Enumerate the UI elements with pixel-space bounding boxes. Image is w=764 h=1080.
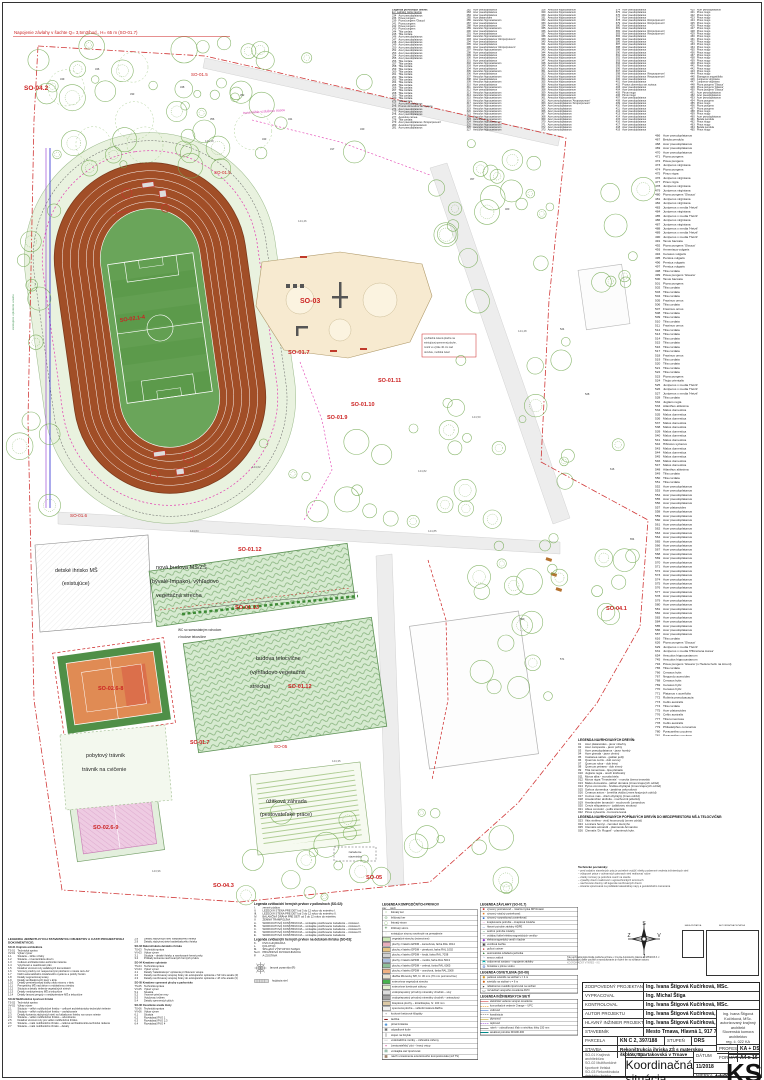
plan-label-t3: strecha) [250, 684, 270, 690]
plan-label-u1: úžitková záhrada [266, 799, 307, 805]
composition-label: plochy z liateho EPDM – oranžová, farba … [392, 970, 453, 973]
tree-symbol [548, 564, 558, 574]
object-item: 3.2Príklady kotvenia navrhovaných hernýc… [135, 958, 253, 961]
symbol-glyph: ○ [383, 911, 390, 915]
color-swatch [383, 969, 391, 974]
legend-objects: LEGENDA JEDNOTLIVÝCH STAVEBNÝCH OBJEKTOV… [8, 938, 252, 1074]
line-swatch [481, 1010, 489, 1011]
field-label: VYPRACOVAL [583, 992, 644, 1000]
note-box-line: existujúcej spevnenej ploche, [424, 342, 457, 345]
tree-symbol [475, 199, 500, 224]
drawing-title: Koordinačná situácia stavby [626, 1058, 693, 1080]
plan-label-leftgreen: existujúce oplotenie areálu [11, 294, 15, 330]
garden-area [250, 762, 370, 855]
tree-symbol [217, 36, 230, 49]
field-value: DRS [692, 1037, 716, 1045]
tree-symbol [468, 565, 491, 588]
building-ms-zs [149, 543, 355, 626]
tree-id-number: 654 [630, 537, 635, 541]
tree-symbol [544, 692, 553, 701]
object-item: 6.4Rozvádzač RVO 4 [135, 1023, 253, 1026]
tree-symbol [527, 358, 544, 375]
tree-symbol [489, 826, 514, 851]
note-box-line: úrovňou, mobilná zeleň [424, 351, 450, 354]
tree-symbol [551, 350, 572, 371]
tree-symbol [304, 887, 316, 899]
tree-symbol [527, 156, 541, 170]
tree-symbol [504, 576, 523, 595]
legend-label: rozvádzač verejného osvetlenia RVO [487, 989, 530, 992]
plan-label-detske1: detské ihrisko MŠ [55, 567, 98, 574]
tree-symbol [492, 441, 505, 454]
field-value: 11/2018 [694, 1063, 728, 1074]
tree-symbol [526, 189, 535, 198]
technical-notes: Technické poznámky:– pred začatím staveb… [578, 866, 760, 918]
tree-symbol [334, 487, 359, 512]
tree-symbol [561, 337, 570, 346]
tree-symbol [418, 809, 425, 816]
composition-label: extenzívna vegetačná strecha [392, 980, 428, 983]
tree-id-number: 349 [60, 77, 65, 81]
tree-id-number: 317 [330, 147, 335, 151]
line-swatch [481, 1028, 489, 1029]
plan-label-so_05a: SO-05 [274, 744, 288, 749]
plan-label-so_01_5b: SO-01.5 [214, 170, 231, 175]
field-label: AUTOR PROJEKTU [583, 1010, 644, 1018]
building-annex [578, 264, 630, 330]
legend-label: návrh – odvodňovací žľab s mriežkou šírk… [490, 1027, 549, 1030]
drawing-code: KS [729, 1058, 759, 1080]
play-item: P.A-ZOSTAVA [254, 954, 380, 957]
legend-label: výsuvný postrekovač – rotačná tryska MP … [487, 908, 544, 911]
legend-label: senzor zrážok [487, 956, 503, 959]
legend-label: kvapkovacie potrubie – kvapková závlaha [487, 921, 535, 924]
field-value: Mesto Trnava, Hlavná 1, 917 71 Trnava [644, 1028, 716, 1036]
object-item: 1.14Detaily lanovej pergoly v medzipries… [8, 994, 126, 997]
tree-symbol [217, 78, 227, 88]
symbol-glyph: ▤ [383, 1050, 390, 1054]
tree-symbol [334, 861, 343, 870]
rope-pyramid-icon [254, 961, 267, 974]
plan-label-p2: trávnik na cvičenie [82, 767, 126, 773]
plan-label-so_01_13: SO-01.13 [235, 605, 259, 611]
tree-symbol [70, 61, 86, 77]
legend-header: LEGENDA JEDNOTLIVÝCH STAVEBNÝCH OBJEKTOV… [8, 938, 126, 945]
legend-label: automatická ovládacia jednotka [487, 952, 523, 955]
symbol-glyph: 〰 [383, 1039, 390, 1043]
composition-label: stojan na bicykle [391, 1034, 411, 1037]
tree-symbol [612, 575, 626, 589]
note-line: – situácia spracovaná na podklade katast… [578, 885, 760, 888]
plan-label-wc1: WC so samostatným vchodom [178, 628, 222, 632]
note-box-line: múrik vo výške 40 cm nad [424, 346, 454, 349]
tree-symbol [473, 162, 488, 177]
field-label: STAVEBNÍK [583, 1028, 644, 1036]
composition-label: vonkajšia sieť športovísk [391, 1050, 420, 1053]
composition-label: listnatý strom [391, 922, 407, 925]
legend-header: LEGENDA ZÁVLAHY (SO-01.7) [480, 903, 578, 907]
tree-symbol [525, 655, 541, 671]
plan-label-so_01_5a: SO-01.5 [191, 72, 208, 77]
tree-symbol [175, 80, 193, 98]
legend-label: komunikačné vedenie Orange – UPC [490, 1005, 533, 1008]
composition-label: spevnená plocha – veľkoformátová dlažba [392, 1007, 443, 1010]
proposed-tree-entry: 022Pinus sylvestris - borovica lesná [578, 811, 760, 814]
composition-label: lavička [391, 1018, 399, 1021]
color-swatch [383, 980, 391, 985]
legend-header: LEGENDA KOMPOZIČNÝCH PRVKOV [382, 903, 478, 907]
tree-symbol [59, 85, 85, 111]
elevation-label: 144,35 [332, 759, 341, 763]
tree-symbol [448, 399, 465, 416]
tree-symbol [502, 150, 523, 171]
tree-symbol [612, 439, 624, 451]
line-swatch [481, 1006, 489, 1007]
tree-symbol [604, 214, 627, 237]
irrigation-table: ■výsuvný postrekovač – rotačná tryska MP… [480, 907, 578, 970]
north-compass: S J V Z [626, 920, 662, 958]
plan-label-so_02_68: SO-02.6-8 [98, 686, 123, 692]
tree-symbol [79, 34, 105, 60]
symbol-glyph: ▣ [383, 1028, 390, 1032]
drawing-sheet: Napojenie závlahy v šachte Q= 3,5m3/hod.… [0, 0, 764, 1080]
tree-symbol [352, 485, 363, 496]
rope-pyramid-row: lanová pyramída (R) [254, 961, 380, 974]
elevation-label: 144,18 [205, 139, 214, 143]
composition-label: plochy z liateho EPDM – šedá, farba RAL … [392, 954, 448, 957]
authorization-stamp-box [706, 930, 759, 976]
tree-symbol [601, 183, 620, 202]
color-swatch [383, 974, 391, 979]
swing-net-icon [254, 978, 269, 983]
object-item: 4.3Detaily navrhovanej vstupnej brány do… [135, 977, 253, 980]
authorization-stamp-caption: AUTORIZAČNÁ PEČIATKA [706, 924, 758, 928]
tree-id-number: 343 [262, 137, 267, 141]
tree-symbol [197, 41, 210, 54]
athletics-track [8, 116, 312, 539]
legend-label: ovládací kábel elektromagnetických venti… [487, 934, 537, 937]
utilities-table: elektrické vedenie verejné osvetleniekom… [480, 999, 578, 1035]
tree-symbol [497, 559, 506, 568]
tree-symbol [439, 420, 458, 439]
tree-symbol [28, 50, 49, 71]
tree-symbol [53, 150, 62, 159]
composition-label: vodozádržné múriky – záhradné záhony [391, 1039, 439, 1042]
plan-label-trasa: trasa kábla vzdušnou trasou [243, 108, 286, 115]
plan-label-so_01_7b: SO-01.7 [190, 740, 209, 746]
elevation-label: 144,62 [252, 465, 261, 469]
legend-label: svietidlo na stožiari v = 6 m [487, 980, 518, 983]
tree-symbol [85, 41, 94, 50]
tree-symbol [407, 515, 419, 527]
building-school-existing [410, 611, 539, 769]
elevation-label: 143,96 [152, 869, 161, 873]
legend-label: fontánka s pitnou vodou [487, 965, 515, 968]
plan-label-wc2: v budove telocvične [178, 635, 206, 639]
composition-label: 'pestovateľský' plot – hravý vstup [391, 1045, 430, 1048]
tree-symbol [112, 60, 134, 82]
composition-label: listnatý ker [391, 911, 404, 914]
tree-symbol [356, 74, 372, 90]
plan-label-u2: (pestovateľské práce) [260, 812, 312, 818]
color-swatch [383, 996, 391, 1001]
composition-label: vegetačné strechy (extenzívne) [392, 938, 429, 941]
composition-label: existujúce stromy navrhnuté na presadeni… [391, 932, 442, 935]
lighting-table: ✺parkové svietidlo na stožiari v = 4 m✹s… [480, 975, 578, 994]
tree-symbol [467, 140, 475, 148]
kindergarten-playground [35, 535, 152, 632]
plan-label-so_01_6: SO-01.6 [70, 513, 88, 518]
composition-label: návrh umiestnenia exteriérového komposto… [391, 1055, 459, 1058]
symbol-glyph: ◯ [383, 921, 390, 925]
tree-symbol [626, 549, 640, 563]
field-value: KN C 2, 397/188 [618, 1037, 665, 1045]
tree-id-number: 560 [520, 617, 525, 621]
plan-label-p1: pobytový trávnik [86, 753, 125, 759]
plan-label-b1l2: (bývalé-Impako), výhľadovo [150, 579, 219, 585]
composition-row: ▦návrh umiestnenia exteriérového kompost… [383, 1054, 478, 1059]
tree-id-number: 460 [505, 207, 510, 211]
legend-label: ventilová šachta [487, 943, 506, 946]
field-value: Ing. Ivana Štigová Kučírková, MSc. [644, 1010, 716, 1018]
tree-id-number: 524 [560, 327, 565, 331]
tree-symbol [289, 470, 297, 478]
tree-entry: 465Pinus mugo [690, 129, 758, 132]
plan-label-so_01_7: SO-01.7 [288, 350, 310, 356]
composition-label: extenzívne kvetinové záhony [392, 986, 427, 989]
tree-symbol [38, 494, 60, 516]
tree-symbol [516, 198, 528, 210]
composition-label: plochy z liateho EPDM – modrá, farba RAL… [392, 959, 450, 962]
tree-entry: 373Acer pseudoplatanus [541, 129, 609, 132]
legend-header: LEGENDA OSVETLENIA (SO-06) [480, 971, 578, 975]
field-label: MIERKA [696, 1074, 713, 1076]
tree-symbol [167, 101, 187, 121]
composition-label: plochy z liateho EPDM – zelená, farba RA… [392, 964, 450, 967]
legend-original-trees-band: Legenda pôvodných drevín:E.č. Latinský n… [392, 9, 758, 133]
field-value: Ing. Ivana Štigová Kučírková, MSc. [644, 1001, 759, 1009]
legend-composition: LEGENDA KOMPOZIČNÝCH PRVKOVstavnávrh○lis… [382, 900, 478, 1074]
elevation-label: 144,50 [472, 415, 481, 419]
tree-symbol [458, 501, 473, 516]
plan-label-so_03: SO-03 [300, 298, 320, 305]
architect-stamp-text: Ing. Ivana Štigová Kučírková, MSc.autori… [717, 1010, 759, 1045]
symbol-glyph: ┅ [383, 1044, 390, 1048]
symbol-glyph: ∥ [383, 1034, 390, 1038]
tree-id-number: 340 [360, 127, 365, 131]
color-swatch [383, 937, 391, 942]
small-stamp-caption: MALÁ PEČIATKA [682, 924, 704, 928]
tree-symbol [472, 840, 487, 855]
tree-id-number: 571 [560, 657, 565, 661]
tree-symbol [628, 252, 637, 261]
plan-label-detske2: (existujúce) [62, 581, 90, 587]
tree-symbol [534, 256, 549, 271]
legend-irrigation-lighting-utilities: LEGENDA ZÁVLAHY (SO-01.7)■výsuvný postre… [480, 900, 578, 1074]
tree-symbol [592, 586, 603, 597]
playground-so03 [256, 252, 432, 358]
plan-label-so_01_9: SO-01.9 [327, 415, 347, 421]
color-swatch [383, 964, 391, 969]
symbol-glyph: ◌ [383, 932, 390, 936]
symbol-glyph: ● [383, 1012, 390, 1016]
site-facility-label: staveniska [348, 855, 362, 859]
plan-label-so_01_12b: SO-01.12 [288, 684, 312, 690]
tree-id-number: 616 [610, 467, 615, 471]
composition-table: ○listnatý ker◎ihličnatý ker◯listnatý str… [382, 910, 478, 1061]
tree-id-number: 346 [95, 67, 100, 71]
legend-label: reflektorové svietidlo športovísk na sto… [487, 985, 536, 988]
elevation-label: 144,82 [418, 469, 427, 473]
tree-symbol [474, 584, 490, 600]
plan-label-so_01_11: SO-01.11 [378, 378, 401, 384]
line-swatch [481, 1019, 489, 1020]
tree-symbol [481, 185, 506, 210]
tree-symbol [437, 497, 453, 513]
symbol-glyph: ▬ [383, 1018, 390, 1022]
tree-symbol [595, 549, 613, 567]
legend-label: výsuvný rozprašovací postrekovač [487, 917, 527, 920]
composition-label: štiepkové plochy – kôra/štiepka, hr. 100… [392, 1002, 444, 1005]
legend-label: areálové potrubie DN100-300 [490, 1031, 524, 1034]
tree-symbol [383, 511, 398, 526]
plan-label-so_01_10: SO-01.10 [351, 402, 375, 408]
composition-label: ihličnatý ker [391, 916, 405, 919]
legend-header: LEGENDA NAVRHOVANÝCH POPÍNAVÝCH DREVÍN D… [578, 816, 760, 819]
legend-row: areálové potrubie DN100-300 [481, 1030, 578, 1034]
tree-symbol [343, 141, 365, 163]
legend-row: ▭rozvádzač verejného osvetlenia RVO [481, 989, 578, 993]
legend-play-elements: Legenda cvičiacich/ herných prvkov v pol… [254, 900, 380, 1074]
tree-symbol [282, 871, 300, 889]
plan-label-b1l1: nová budova MŠ/ZŠ [156, 564, 207, 571]
tree-symbol [372, 444, 392, 464]
plan-label-so_01_12a: SO-01.12 [238, 547, 262, 553]
tree-symbol [463, 433, 472, 442]
tree-symbol [344, 429, 369, 454]
line-swatch [481, 1023, 489, 1024]
tree-symbol [307, 500, 329, 522]
legend-label: hlavné potrubie závlahy HDPE [487, 926, 522, 929]
field-value: Ing. Ivana Štigová Kučírková, MSc. [644, 983, 759, 991]
legend-original-trees-column: 466Acer pseudoplatanus467Betula pendula4… [655, 134, 761, 736]
field-value: Ing. Ivana Štigová Kučírková, MSc. [644, 1019, 716, 1027]
tree-symbol [297, 851, 316, 870]
color-swatch [383, 1006, 391, 1011]
legend-label: elektromagnetický ventil v šachte [487, 939, 525, 942]
field-label: VÝKRES [628, 1052, 645, 1057]
tree-symbol [448, 441, 462, 455]
line-swatch [481, 1001, 489, 1002]
tree-symbol [230, 81, 252, 103]
proposed-tree-entry: 026Clematis 'Dr. Ruppel' - plamienok hyb… [578, 829, 760, 832]
legend-label: sekčné potrubie závlahy [487, 930, 515, 933]
tree-id-number: 457 [470, 177, 475, 181]
compass-north: S [642, 921, 646, 927]
color-swatch [383, 953, 391, 958]
plan-label-so_04_2: SO-04.2 [24, 85, 49, 92]
composition-label: plochy z liateho EPDM – piesková, farba … [392, 948, 453, 951]
symbol-glyph: ◎ [383, 916, 390, 920]
tree-symbol [561, 449, 574, 462]
field-label: STUPEŇ [665, 1037, 692, 1045]
symbol-glyph: ✳ [383, 927, 390, 931]
tree-symbol [632, 177, 656, 201]
tree-symbol [95, 81, 116, 102]
site-facility-label: zariadenie [349, 850, 362, 854]
title-block: ZODPOVEDNÝ PROJEKTANT Ing. Ivana Štigová… [582, 982, 758, 1075]
building-telocvicna [183, 617, 386, 752]
symbol-glyph: ▦ [383, 1055, 390, 1059]
tree-id-number: 333 [130, 92, 135, 96]
color-swatch [383, 942, 391, 947]
tree-symbol [493, 867, 519, 893]
tree-symbol [6, 433, 33, 460]
tree-symbol [61, 131, 86, 156]
tree-symbol [302, 53, 312, 63]
composition-label: kruhové betónové šľapáky [391, 1012, 423, 1015]
tree-symbol [302, 472, 311, 481]
color-swatch [383, 985, 391, 990]
tree-symbol [516, 569, 542, 595]
field-label: PARCELA [583, 1037, 618, 1045]
plan-label-so_04_3: SO-04.3 [213, 883, 234, 889]
tree-id-number: 528 [585, 392, 590, 396]
legend-proposed-trees: LEGENDA NAVRHOVANÝCH DREVÍN:01Acer plata… [578, 736, 760, 862]
copyright-note: Táto architektonická štúdia podlieha och… [567, 956, 691, 980]
tree-symbol [197, 108, 206, 117]
tree-symbol [236, 886, 255, 905]
object-item: 2.9Detaily záchytnej siete basketbalovéh… [135, 941, 253, 944]
tree-symbol [171, 37, 197, 63]
tree-symbol [537, 210, 546, 219]
tree-id-number: 341 [288, 117, 293, 121]
color-swatch [383, 948, 391, 953]
color-swatch [383, 990, 391, 995]
tree-symbol [546, 203, 554, 211]
symbol-glyph: ◉ [383, 1023, 390, 1027]
plan-label-t1: budova telocvične [256, 656, 301, 662]
composition-label: odpadkové koše [391, 1028, 411, 1031]
tree-symbol [194, 90, 201, 97]
legend-label: parkové svietidlo na stožiari v = 4 m [487, 976, 528, 979]
field-label: DÁTUM [694, 1052, 728, 1063]
tree-symbol [404, 834, 428, 858]
tree-entry: 419Acer pseudoplatanus [616, 129, 684, 132]
irrigation-connection-note: Napojenie závlahy v šachte Q= 3,5m3/hod.… [14, 30, 138, 35]
drawing-set-refs: SO-01 Krajinná architektúraSO-02 Multifu… [585, 1053, 623, 1076]
tree-symbol [454, 479, 476, 501]
tree-symbol [560, 457, 569, 466]
note-box-line: využiteľná zelená plocha na [424, 337, 455, 340]
legend-header: LEGENDA NAVRHOVANÝCH DREVÍN: [578, 739, 760, 742]
tree-symbol [91, 76, 99, 84]
plan-label-b1l3: vegetačná strecha [156, 593, 203, 599]
legend-label: plynovod [490, 1018, 500, 1021]
composition-label: vodopriepustný prírodný minerálny chodní… [392, 996, 460, 999]
copyright-line3: KOORDINAČNÝ VÝKRES – KS [567, 961, 691, 964]
compass-west: Z [627, 933, 630, 939]
tree-symbol [613, 549, 636, 572]
benches [546, 557, 563, 592]
tree-symbol [521, 611, 543, 633]
legend-row: ◍fontánka s pitnou vodou [481, 965, 578, 969]
tree-symbol [409, 424, 418, 433]
tree-symbol [231, 93, 240, 102]
compass-east: V [657, 933, 661, 939]
legend-label: teplovod [490, 1022, 500, 1025]
composition-label: vodopriepustný prírodný minerálny chodní… [392, 991, 451, 994]
